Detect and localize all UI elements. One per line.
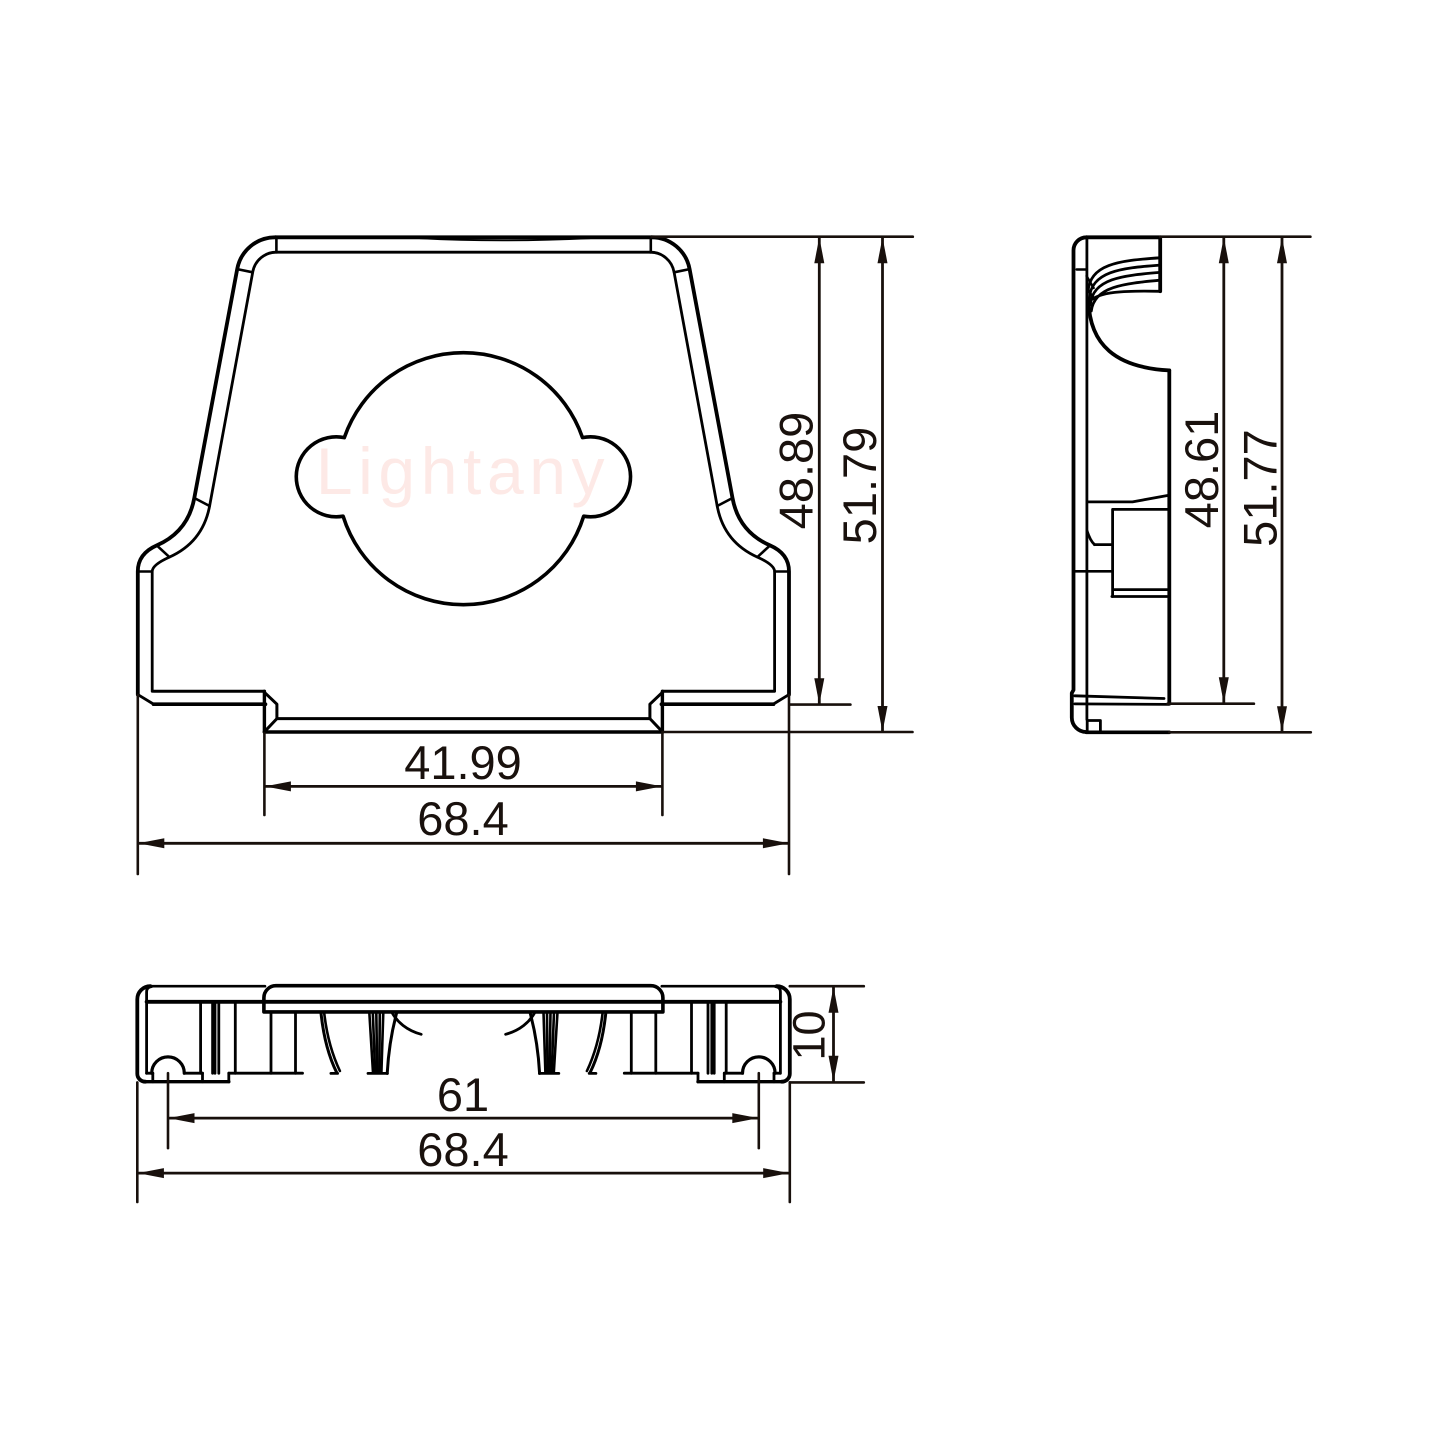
svg-text:48.61: 48.61	[1175, 411, 1228, 529]
svg-text:Lightany: Lightany	[316, 434, 610, 508]
svg-text:51.77: 51.77	[1233, 429, 1286, 547]
svg-text:51.79: 51.79	[833, 427, 886, 545]
svg-text:68.4: 68.4	[417, 1123, 508, 1176]
svg-text:41.99: 41.99	[404, 736, 522, 789]
svg-text:48.89: 48.89	[769, 412, 822, 530]
svg-text:61: 61	[437, 1068, 489, 1121]
svg-text:68.4: 68.4	[417, 792, 508, 845]
svg-text:10: 10	[783, 1010, 834, 1060]
